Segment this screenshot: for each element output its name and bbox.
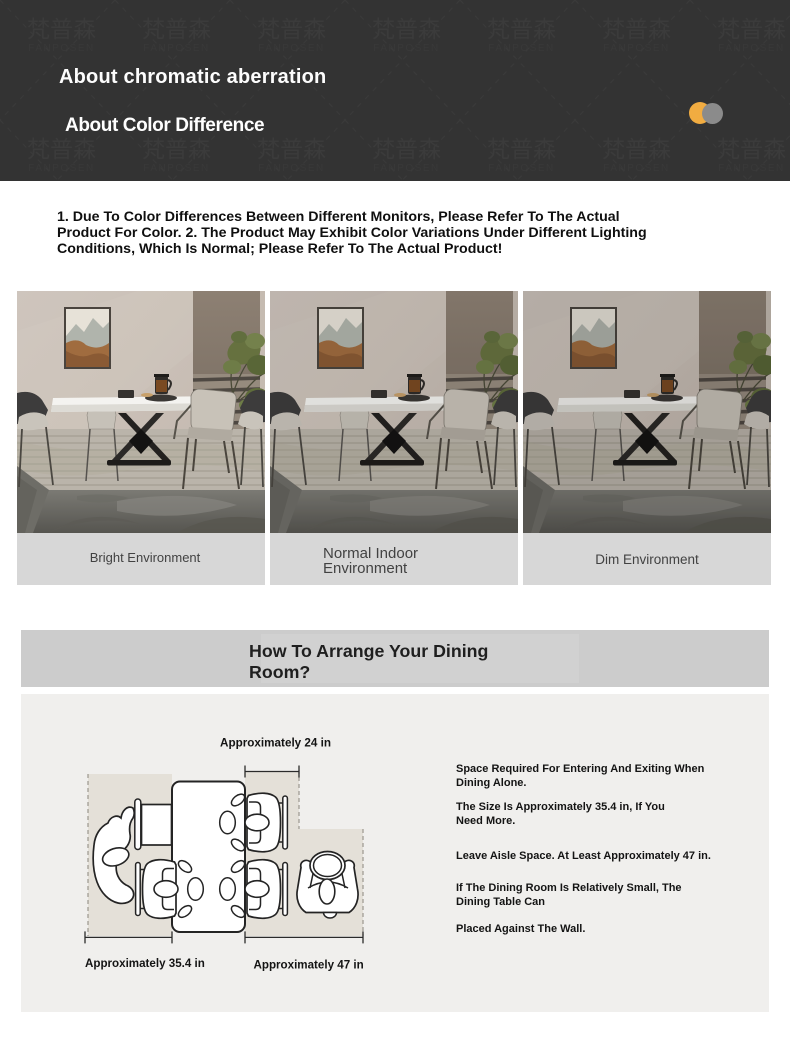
svg-text:Approximately 24 in: Approximately 24 in <box>220 737 331 750</box>
svg-text:Approximately 35.4 in: Approximately 35.4 in <box>85 957 205 970</box>
svg-text:Approximately 47 in: Approximately 47 in <box>254 959 364 972</box>
